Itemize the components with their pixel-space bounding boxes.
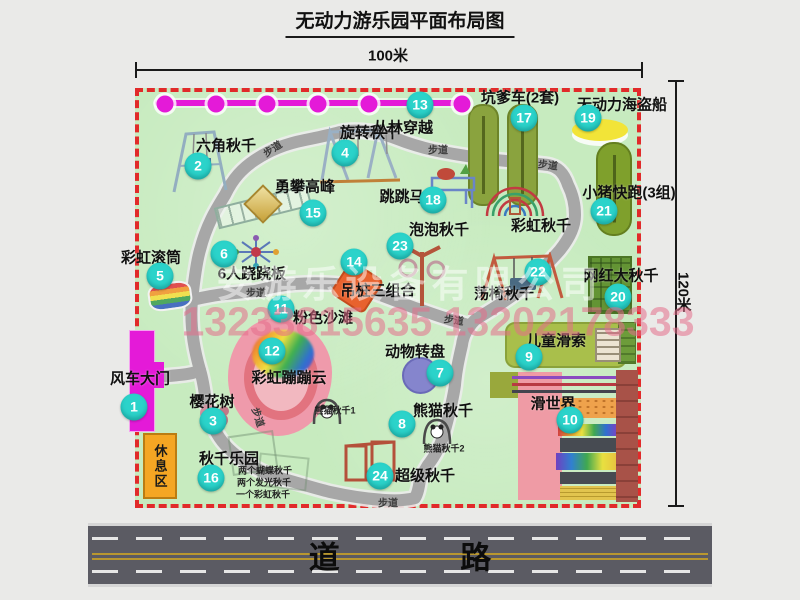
slide-world-dark-lane-2 [560,472,618,484]
park-layout-page: 无动力游乐园平面布局图 100米 120米 步道 步道 步道 步道 步道 步道 … [0,0,800,600]
label-climbing-peak: 勇攀高峰 [275,176,335,197]
page-title: 无动力游乐园平面布局图 [285,6,514,38]
marker-11[interactable]: 11 [268,296,295,323]
marker-5[interactable]: 5 [147,263,174,290]
slide-world-brick-tower [616,370,638,502]
dimension-height-tick-bottom [668,505,684,507]
label-windmill-gate: 风车大门 [110,368,170,389]
dimension-height-tick-top [668,80,684,82]
zipline-node [157,96,174,113]
marker-20[interactable]: 20 [605,284,632,311]
label-swing-paradise-note-3: 一个彩虹秋千 [236,488,290,501]
label-animal-carousel: 动物转盘 [385,341,445,362]
marker-1[interactable]: 1 [121,394,148,421]
dimension-width-tick-right [641,62,643,78]
label-big-swing: 网红大秋千 [583,265,658,286]
label-jungle-crossing: 丛林穿越 [373,117,433,138]
children-zipline-ladder [595,328,621,362]
marker-6[interactable]: 6 [211,241,238,268]
marker-16[interactable]: 16 [198,465,225,492]
label-jumping-horse: 跳跳马 [379,186,424,207]
slide-world-rainbow-lane [556,453,618,470]
marker-9[interactable]: 9 [516,344,543,371]
marker-22[interactable]: 22 [525,259,552,286]
label-panda-swing-1: 熊猫秋千1 [314,404,355,417]
marker-15[interactable]: 15 [300,200,327,227]
label-rainbow-cloud: 彩虹蹦蹦云 [251,367,326,388]
trail-label: 步道 [378,495,398,510]
dimension-height-label: 120米 [673,272,694,312]
label-panda-swing-2: 熊猫秋千2 [423,442,464,455]
marker-17[interactable]: 17 [511,105,538,132]
marker-24[interactable]: 24 [367,463,394,490]
trail-label: 步道 [537,155,559,172]
dimension-width-line [135,69,643,71]
label-pink-beach: 粉色沙滩 [293,307,353,328]
rainbow-swing-structure [484,176,546,218]
marker-10[interactable]: 10 [557,407,584,434]
marker-21[interactable]: 21 [591,198,618,225]
trail-label: 步道 [246,285,266,300]
zipline-node [361,96,378,113]
slide-world-dark-lane-1 [560,438,618,452]
marker-7[interactable]: 7 [427,360,454,387]
label-rainbow-swing: 彩虹秋千 [511,215,571,236]
zipline-node [259,96,276,113]
marker-8[interactable]: 8 [389,411,416,438]
marker-13[interactable]: 13 [407,92,434,119]
marker-18[interactable]: 18 [420,187,447,214]
label-hexagon-swing: 六角秋千 [196,135,256,156]
rest-area: 休息区 [143,433,177,499]
marker-4[interactable]: 4 [332,140,359,167]
zipline-node [454,96,471,113]
marker-14[interactable]: 14 [341,249,368,276]
trail-label: 步道 [443,310,465,328]
slide-world-wave-lane [560,486,618,500]
label-bubble-swing: 泡泡秋千 [409,219,469,240]
dimension-width-tick-left [135,62,137,78]
dimension-width-label: 100米 [368,45,408,66]
zipline-node [208,96,225,113]
marker-2[interactable]: 2 [185,153,212,180]
marker-12[interactable]: 12 [259,338,286,365]
label-hanging-piles: 吊桩三组合 [340,280,415,301]
zipline-node [310,96,327,113]
label-super-swing: 超级秋千 [395,465,455,486]
trail-label: 步道 [428,142,448,157]
label-swing-chair: 荡椅秋千 [474,283,534,304]
rest-area-label: 休息区 [151,444,170,489]
road: 道 路 [88,523,712,587]
label-panda-swing: 熊猫秋千 [413,400,473,421]
road-label: 道 路 [309,533,548,578]
marker-23[interactable]: 23 [387,233,414,260]
marker-3[interactable]: 3 [200,408,227,435]
marker-19[interactable]: 19 [575,105,602,132]
